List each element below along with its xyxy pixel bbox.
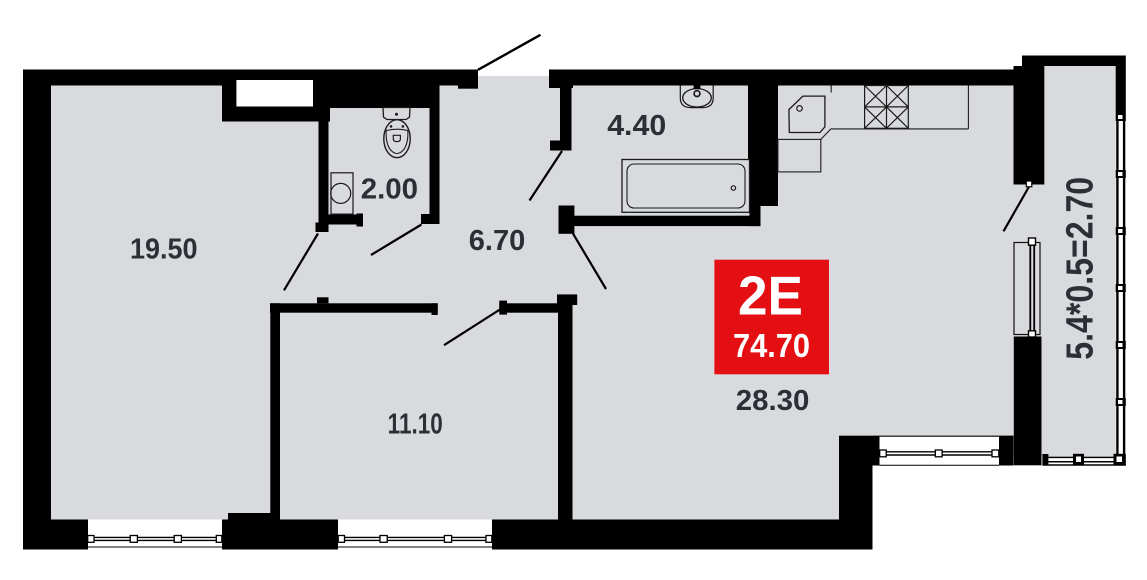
svg-text:5.4*0.5=2.70: 5.4*0.5=2.70	[1059, 177, 1101, 360]
svg-text:19.50: 19.50	[130, 233, 198, 265]
svg-text:6.70: 6.70	[469, 225, 526, 257]
svg-text:28.30: 28.30	[736, 385, 810, 417]
svg-text:11.10: 11.10	[388, 409, 443, 440]
svg-text:2.00: 2.00	[361, 174, 418, 206]
svg-text:2E: 2E	[738, 265, 803, 326]
svg-text:74.70: 74.70	[733, 327, 810, 364]
svg-text:4.40: 4.40	[607, 109, 666, 141]
